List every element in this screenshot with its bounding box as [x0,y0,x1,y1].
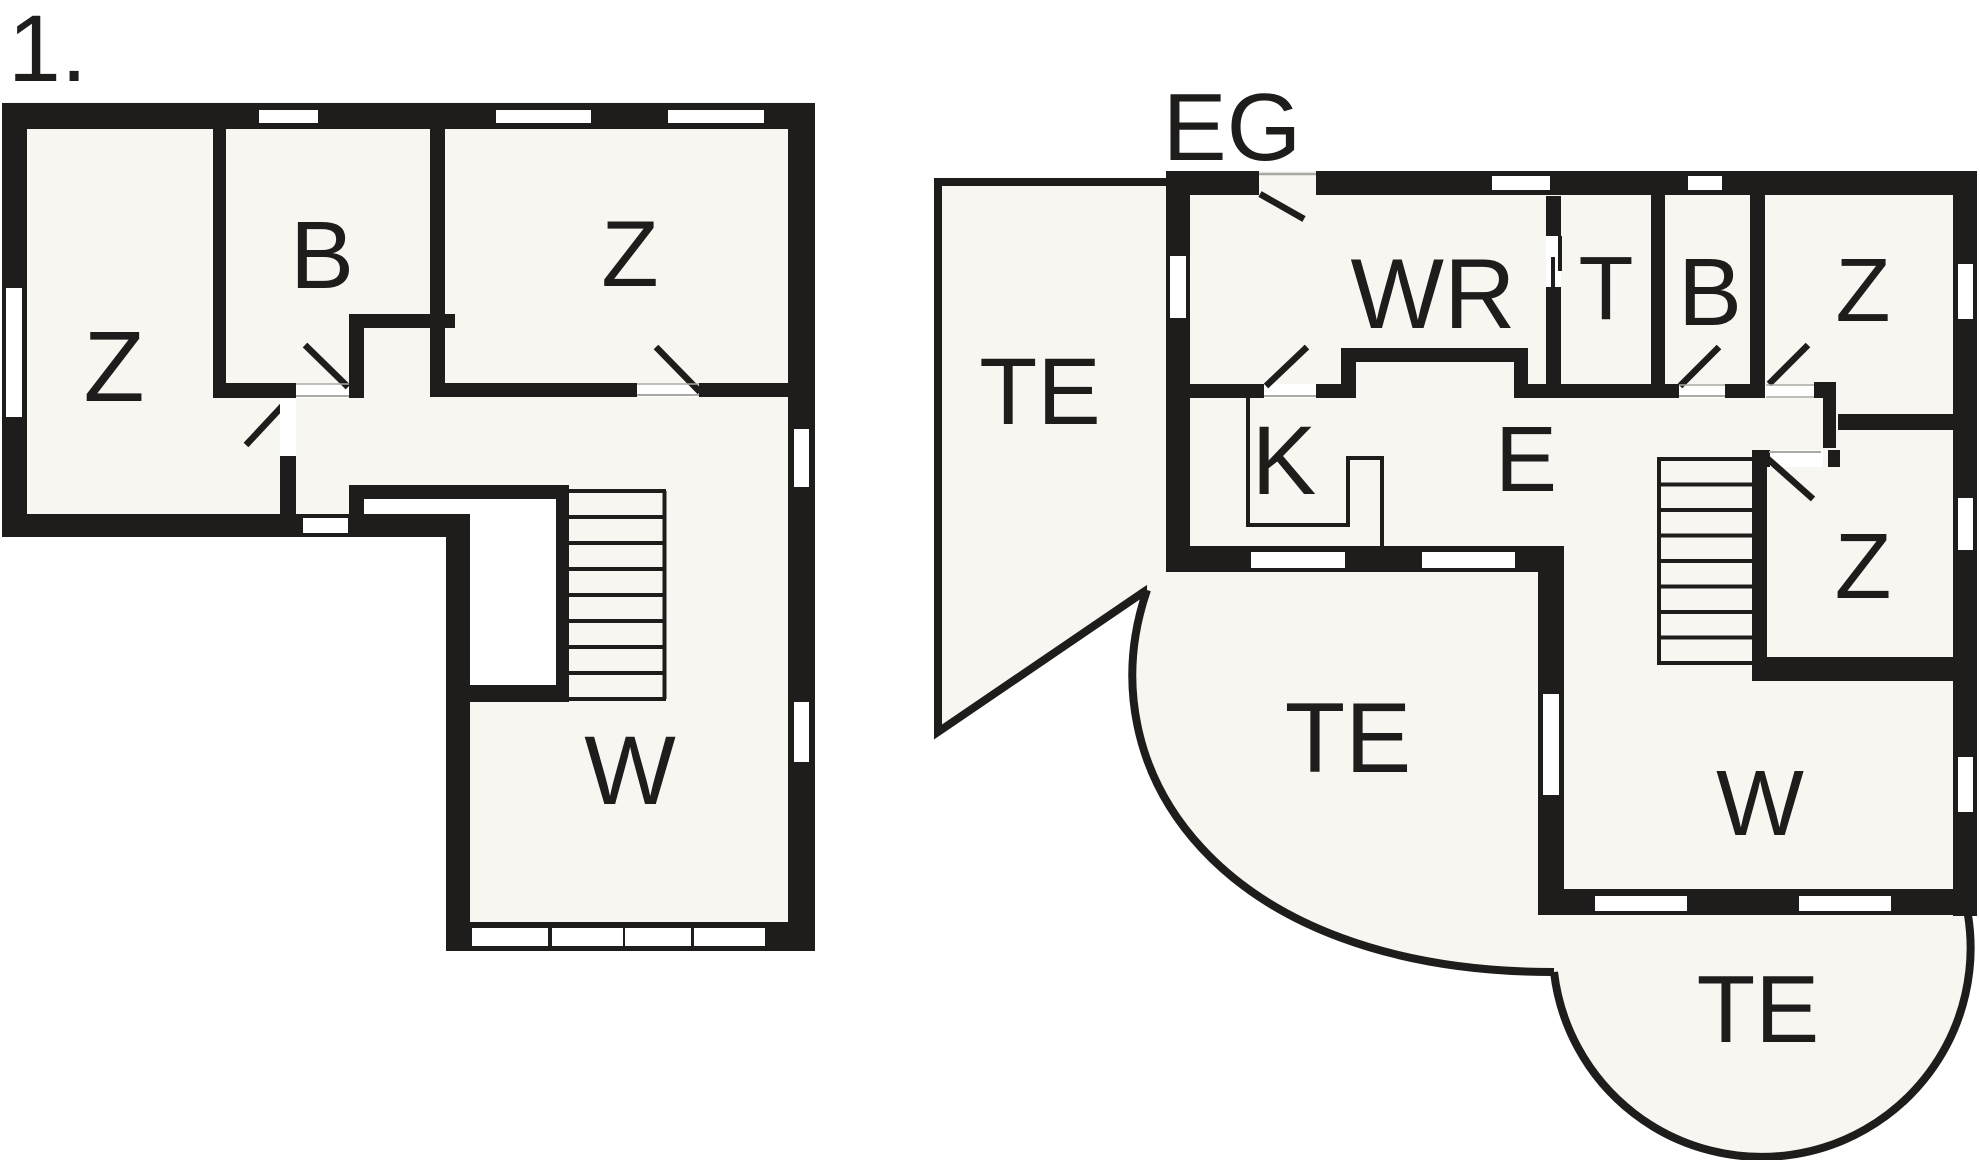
svg-text:K: K [1252,406,1317,515]
svg-text:B: B [290,202,354,309]
svg-text:E: E [1495,407,1557,511]
svg-text:TE: TE [979,339,1100,445]
svg-text:WR: WR [1351,238,1516,349]
svg-text:TE: TE [1697,956,1820,1063]
svg-text:W: W [584,716,676,825]
svg-text:W: W [1716,751,1804,855]
svg-text:Z: Z [1836,241,1891,341]
svg-text:Z: Z [1835,514,1892,618]
svg-text:TE: TE [1285,682,1412,793]
svg-text:Z: Z [83,311,144,423]
svg-text:EG: EG [1163,74,1302,181]
svg-text:B: B [1678,239,1742,346]
svg-text:Z: Z [601,201,658,306]
svg-text:1.: 1. [8,0,87,102]
svg-text:T: T [1579,239,1634,339]
